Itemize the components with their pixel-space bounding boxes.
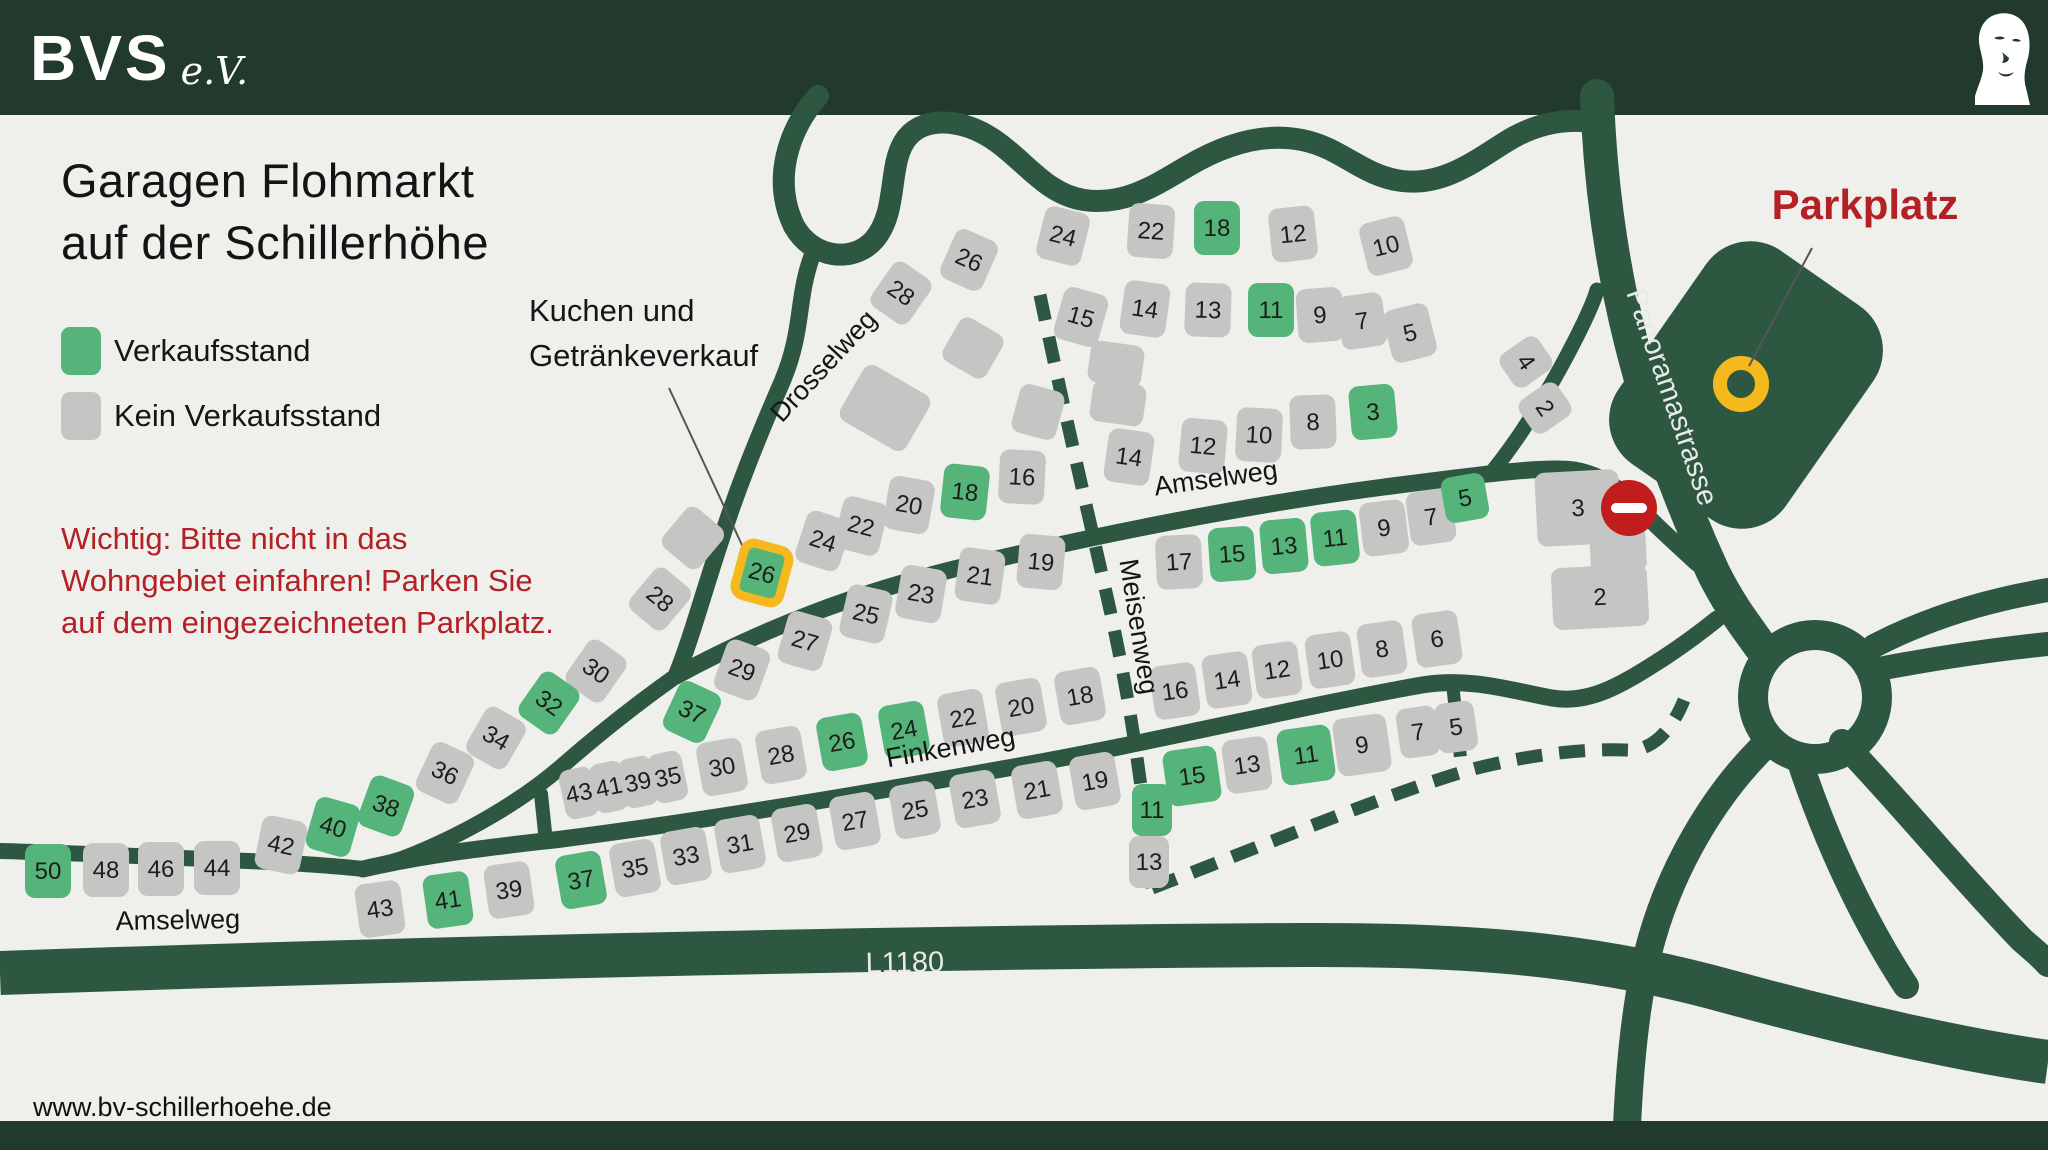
plot-10: 10 <box>1303 630 1356 690</box>
plot-26: 26 <box>937 226 1001 294</box>
plot-2: 2 <box>1550 564 1649 631</box>
plot-number: 30 <box>707 752 738 783</box>
plot-23: 23 <box>948 768 1003 829</box>
plot-number: 43 <box>563 778 595 810</box>
street-label-l1180: L1180 <box>865 946 944 979</box>
plot-number: 44 <box>204 855 231 882</box>
plot-25: 25 <box>888 779 943 840</box>
plot-17: 17 <box>1155 534 1204 590</box>
legend-swatch-green <box>61 327 101 375</box>
plot-number: 10 <box>1245 421 1273 449</box>
footer-bar <box>0 1121 2048 1150</box>
plot-number: 14 <box>1114 442 1144 472</box>
plot-number: 11 <box>1292 740 1320 770</box>
plot-6: 6 <box>1410 609 1463 669</box>
plot-number: 13 <box>1232 750 1262 780</box>
plot-15: 15 <box>1207 525 1257 582</box>
plot-number: 14 <box>1212 665 1242 695</box>
plot-26: 26 <box>815 711 870 772</box>
plot-14: 14 <box>1200 650 1253 710</box>
plot-3: 3 <box>1348 383 1399 441</box>
plot-9: 9 <box>1331 713 1393 778</box>
plot-13: 13 <box>1259 517 1310 575</box>
plot-18: 18 <box>1194 201 1240 255</box>
plot-30: 30 <box>695 736 750 797</box>
plot-number: 23 <box>960 784 991 815</box>
plot-number: 21 <box>965 561 995 591</box>
plot-number: 28 <box>766 740 797 771</box>
plot-9: 9 <box>1295 286 1345 343</box>
plot-number: 13 <box>1136 849 1163 876</box>
plot-20: 20 <box>882 474 937 535</box>
road-roundabout-east-b <box>1884 644 2048 668</box>
plot-50: 50 <box>25 844 71 898</box>
plot-unlabeled <box>1086 339 1145 388</box>
plot-11: 11 <box>1132 784 1172 836</box>
plot-number: 26 <box>827 727 858 758</box>
road-l1180 <box>0 945 2048 1062</box>
plot-number: 18 <box>1065 681 1096 712</box>
plot-22: 22 <box>832 494 890 558</box>
plot-number: 12 <box>1188 432 1217 461</box>
plot-13: 13 <box>1220 735 1273 795</box>
road-roundabout-southwest <box>1626 748 1762 1150</box>
kuchen-line2: Getränkeverkauf <box>529 333 758 378</box>
plot-39: 39 <box>482 860 535 920</box>
road-finkenweg <box>363 619 1717 869</box>
plot-41: 41 <box>421 870 474 930</box>
plot-unlabeled <box>939 314 1007 382</box>
road-stub <box>541 794 546 842</box>
plot-number: 43 <box>365 894 395 924</box>
plot-number: 31 <box>725 829 756 860</box>
plot-8: 8 <box>1355 619 1408 679</box>
plot-12: 12 <box>1250 640 1303 700</box>
plot-31: 31 <box>713 813 768 874</box>
plot-11: 11 <box>1248 283 1294 337</box>
plot-number: 12 <box>1262 655 1292 685</box>
plot-26: 26 <box>733 541 791 605</box>
plot-number: 12 <box>1278 220 1307 250</box>
plot-number: 8 <box>1306 409 1320 436</box>
plot-10: 10 <box>1235 407 1284 463</box>
warning-line2: Wohngebiet einfahren! Parken Sie <box>61 560 554 602</box>
legend-label: Kein Verkaufsstand <box>114 398 381 434</box>
plot-number: 39 <box>494 875 524 905</box>
legend: Verkaufsstand Kein Verkaufsstand <box>61 327 381 457</box>
plot-7: 7 <box>1335 291 1388 351</box>
plot-25: 25 <box>838 583 895 646</box>
plot-10: 10 <box>1357 214 1415 278</box>
no-entry-sign-icon <box>1601 480 1657 536</box>
plot-19: 19 <box>1016 533 1067 591</box>
warning-text: Wichtig: Bitte nicht in das Wohngebiet e… <box>61 518 554 644</box>
warning-line1: Wichtig: Bitte nicht in das <box>61 518 554 560</box>
road-branch-panorama <box>1492 290 1597 472</box>
plot-5: 5 <box>1433 699 1480 754</box>
plot-15: 15 <box>1051 285 1110 350</box>
legend-item-verkaufsstand: Verkaufsstand <box>61 327 381 375</box>
warning-line3: auf dem eingezeichneten Parkplatz. <box>61 602 554 644</box>
plot-14: 14 <box>1102 427 1155 487</box>
plot-unlabeled <box>1088 378 1147 427</box>
plot-18: 18 <box>939 463 990 522</box>
plot-number: 25 <box>900 795 931 826</box>
plot-27: 27 <box>828 790 883 851</box>
plot-43: 43 <box>353 879 406 939</box>
legend-item-kein-verkaufsstand: Kein Verkaufsstand <box>61 392 381 440</box>
plot-38: 38 <box>355 773 417 839</box>
plot-number: 3 <box>1571 495 1586 523</box>
legend-label: Verkaufsstand <box>114 333 310 369</box>
plot-14: 14 <box>1118 279 1171 339</box>
plot-5: 5 <box>1381 301 1439 365</box>
plot-number: 15 <box>1218 540 1247 569</box>
plot-number: 11 <box>1321 524 1349 553</box>
plot-number: 22 <box>1137 217 1166 246</box>
plot-11: 11 <box>1275 724 1336 787</box>
plot-24: 24 <box>1034 204 1092 268</box>
flyer-map: BVS e.V. <box>0 0 2048 1150</box>
plot-37: 37 <box>554 849 609 910</box>
plot-8: 8 <box>1289 394 1337 450</box>
plot-unlabeled <box>836 361 934 454</box>
plot-number: 18 <box>1204 215 1231 242</box>
plot-number: 2 <box>1593 584 1608 612</box>
plot-11: 11 <box>1309 509 1360 568</box>
plot-18: 18 <box>1053 665 1108 726</box>
plot-number: 21 <box>1022 775 1053 806</box>
plot-number: 20 <box>893 490 924 521</box>
plot-16: 16 <box>998 449 1047 505</box>
page-title-line2: auf der Schillerhöhe <box>61 212 489 274</box>
plot-number: 39 <box>622 767 654 799</box>
plot-23: 23 <box>894 563 949 624</box>
parkplatz-label: Parkplatz <box>1760 181 1970 229</box>
plot-33: 33 <box>659 825 714 886</box>
plot-number: 50 <box>35 858 62 885</box>
plot-46: 46 <box>138 842 184 896</box>
legend-swatch-gray <box>61 392 101 440</box>
plot-13: 13 <box>1129 836 1169 888</box>
plot-number: 16 <box>1008 463 1036 491</box>
plot-9: 9 <box>1358 498 1410 557</box>
plot-number: 35 <box>652 762 684 794</box>
plot-number: 20 <box>1006 692 1037 723</box>
plot-number: 19 <box>1026 548 1055 577</box>
plot-44: 44 <box>194 841 240 895</box>
plot-number: 18 <box>950 478 979 508</box>
plot-12: 12 <box>1267 205 1318 264</box>
page-title-line1: Garagen Flohmarkt <box>61 150 489 212</box>
plot-5: 5 <box>1439 472 1490 525</box>
plot-number: 33 <box>671 841 702 872</box>
plot-28: 28 <box>625 564 695 635</box>
plot-35: 35 <box>608 837 663 898</box>
plot-40: 40 <box>303 795 362 860</box>
plot-19: 19 <box>1068 750 1123 811</box>
plot-number: 13 <box>1194 297 1222 325</box>
plot-21: 21 <box>1010 759 1065 820</box>
plot-number: 41 <box>433 885 463 915</box>
plot-number: 17 <box>1165 548 1193 576</box>
street-label-amselweg: Amselweg <box>115 904 240 936</box>
plot-number: 3 <box>1365 398 1381 426</box>
plot-number: 48 <box>93 857 120 884</box>
plot-number: 46 <box>148 856 175 883</box>
plot-number: 11 <box>1259 297 1284 324</box>
plot-28: 28 <box>754 724 809 785</box>
plot-number: 29 <box>782 818 813 849</box>
plot-number: 42 <box>265 830 297 862</box>
plot-number: 15 <box>1177 761 1207 791</box>
website-url[interactable]: www.bv-schillerhoehe.de <box>33 1092 332 1123</box>
plot-number: 13 <box>1270 532 1299 561</box>
plot-number: 14 <box>1130 294 1160 324</box>
plot-number: 19 <box>1080 766 1111 797</box>
plot-28: 28 <box>867 258 936 329</box>
plot-13: 13 <box>1184 282 1232 338</box>
kuchen-annotation: Kuchen und Getränkeverkauf <box>529 288 758 378</box>
plot-number: 11 <box>1140 797 1165 824</box>
plot-22: 22 <box>1126 202 1176 259</box>
plot-21: 21 <box>953 546 1006 606</box>
plot-number: 9 <box>1312 302 1327 330</box>
plot-number: 35 <box>620 853 651 884</box>
plot-number: 23 <box>905 579 936 610</box>
plot-number: 10 <box>1315 645 1345 675</box>
plot-29: 29 <box>770 802 825 863</box>
plot-48: 48 <box>83 843 129 897</box>
kuchen-line1: Kuchen und <box>529 288 758 333</box>
road-top-loop <box>784 96 1592 255</box>
page-title: Garagen Flohmarkt auf der Schillerhöhe <box>61 150 489 274</box>
plot-number: 37 <box>566 865 597 896</box>
plot-number: 27 <box>840 806 871 837</box>
